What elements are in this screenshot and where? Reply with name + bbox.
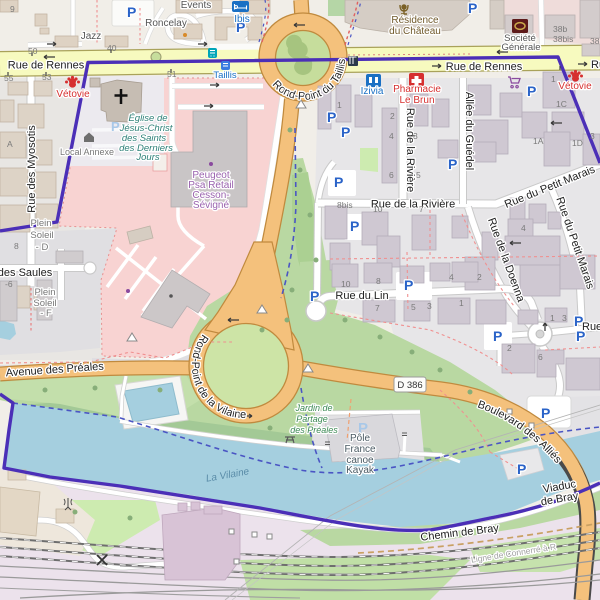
svg-text:Rue de Rennes: Rue de Rennes [8,60,85,72]
svg-text:Sévigné: Sévigné [193,200,230,211]
svg-text:1: 1 [337,100,342,110]
svg-text:Plein: Plein [30,218,51,229]
svg-text:Izivia: Izivia [361,86,384,97]
svg-text:3: 3 [413,131,418,141]
svg-text:9: 9 [10,4,15,14]
svg-text:Pôle: Pôle [350,433,370,444]
svg-text:6: 6 [389,170,394,180]
svg-text:5: 5 [411,302,416,312]
svg-text:Jardin de: Jardin de [294,403,332,413]
svg-text:France: France [344,444,376,455]
svg-text:Vétovie: Vétovie [56,89,90,100]
svg-text:Roncelay: Roncelay [145,18,187,29]
svg-text:Local Annexe: Local Annexe [60,147,114,157]
svg-text:Taillis: Taillis [213,70,236,81]
svg-text:1D: 1D [572,138,583,148]
svg-text:40: 40 [107,43,117,53]
svg-text:P: P [327,109,336,125]
svg-text:7: 7 [419,204,424,214]
svg-text:P: P [448,156,457,172]
svg-text:Allée du Guédel: Allée du Guédel [463,92,475,170]
svg-text:du Château: du Château [389,26,441,37]
svg-text:1A: 1A [533,136,544,146]
svg-text:Events: Events [181,0,212,11]
svg-text:Rue de Rennes: Rue de Rennes [446,61,523,73]
svg-text:P: P [404,277,413,293]
svg-text:4: 4 [521,223,526,233]
svg-text:des Préales: des Préales [290,425,338,435]
svg-text:Jazz: Jazz [81,31,102,42]
svg-text:8: 8 [376,276,381,286]
svg-text:10: 10 [341,279,351,289]
svg-text:38: 38 [590,36,600,46]
svg-text:P: P [350,218,359,234]
svg-text:2: 2 [507,343,512,353]
svg-text:P: P [468,0,477,16]
svg-text:Générale: Générale [501,42,540,53]
svg-text:A: A [7,139,13,149]
svg-text:6: 6 [538,352,543,362]
svg-text:2: 2 [390,111,395,121]
svg-text:Rue de la Rivière: Rue de la Rivière [404,108,416,192]
svg-text:Kayak: Kayak [346,465,375,476]
svg-text:38bis: 38bis [553,34,573,44]
svg-text:P: P [517,461,526,477]
svg-text:- D: - D [36,242,49,253]
svg-text:P: P [341,124,350,140]
svg-text:P: P [310,288,319,304]
svg-text:10: 10 [373,204,383,214]
svg-text:4: 4 [389,131,394,141]
svg-text:P: P [527,83,536,99]
svg-text:53: 53 [42,72,52,82]
svg-text:des Saules: des Saules [0,267,53,279]
svg-text:- F: - F [40,308,52,319]
svg-text:1: 1 [551,74,556,84]
svg-text:3: 3 [590,131,595,141]
svg-text:Pharmacie: Pharmacie [393,84,441,95]
svg-text:Ibis: Ibis [234,14,250,25]
svg-text:Rue du Lin: Rue du Lin [335,290,388,302]
svg-text:Rue: Rue [582,321,600,333]
svg-text:Rue des Myosotis: Rue des Myosotis [26,125,38,213]
svg-text:4: 4 [449,272,454,282]
svg-text:Rue de la Rivière: Rue de la Rivière [371,199,455,211]
svg-text:Partage: Partage [296,414,328,424]
svg-text:P: P [127,4,136,20]
svg-text:P: P [334,174,343,190]
svg-text:D 386: D 386 [397,380,422,391]
svg-text:38b: 38b [553,24,567,34]
svg-text:5: 5 [416,170,421,180]
svg-text:Jours: Jours [135,152,159,163]
svg-text:2: 2 [477,272,482,282]
svg-text:7: 7 [375,303,380,313]
svg-text:P: P [493,328,502,344]
svg-text:Vétovie: Vétovie [558,81,592,92]
svg-text:1C: 1C [556,99,567,109]
svg-text:50: 50 [28,46,38,56]
svg-text:Le Brun: Le Brun [399,95,434,106]
svg-text:Plein: Plein [34,287,55,298]
svg-text:P: P [541,405,550,421]
svg-text:3: 3 [562,313,567,323]
svg-text:-6: -6 [5,279,13,289]
svg-text:Ru: Ru [591,59,600,71]
svg-text:3: 3 [427,301,432,311]
svg-text:Soleil: Soleil [30,230,53,241]
svg-text:Résidence: Résidence [391,15,439,26]
svg-text:1: 1 [459,298,464,308]
svg-text:8: 8 [14,241,19,251]
svg-text:1: 1 [550,313,555,323]
svg-text:51: 51 [167,69,177,79]
svg-text:55: 55 [4,73,14,83]
svg-text:8bis: 8bis [337,200,353,210]
